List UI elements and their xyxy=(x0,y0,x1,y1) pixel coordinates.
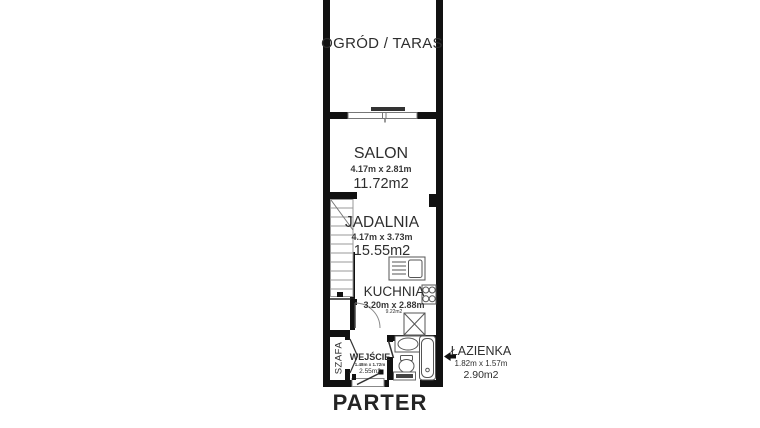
salon-label: SALON xyxy=(350,145,411,163)
salon-area: 11.72m2 xyxy=(350,176,411,193)
entrance-label: WEJŚCIE xyxy=(350,352,391,362)
bathroom-dimensions: 1.82m x 1.57m xyxy=(451,359,511,369)
room-label-dining: JADALNIA 4.17m x 3.73m 15.55m2 xyxy=(345,214,419,260)
plan-title: PARTER xyxy=(333,390,428,416)
kitchen-label: KUCHNIA xyxy=(363,284,424,300)
bathroom-window-icon xyxy=(394,372,416,380)
dining-label: JADALNIA xyxy=(345,214,419,232)
room-label-bathroom: ŁAZIENKA 1.82m x 1.57m 2.90m2 xyxy=(451,344,511,381)
balcony-step xyxy=(371,107,405,111)
room-label-terrace: OGRÓD / TARAS xyxy=(321,35,443,52)
dining-dimensions: 4.17m x 3.73m xyxy=(345,232,419,242)
room-label-kitchen: KUCHNIA 3.20m x 2.88m 9.22m2 xyxy=(363,284,424,316)
kitchen-area: 9.22m2 xyxy=(363,310,424,316)
bathroom-label: ŁAZIENKA xyxy=(451,344,511,359)
room-label-wardrobe: SZAFA xyxy=(334,342,345,375)
fridge-icon xyxy=(404,313,425,335)
entrance-dimensions: 1.48m x 1.72m xyxy=(350,362,391,367)
wardrobe-label: SZAFA xyxy=(334,342,345,375)
understair-closet xyxy=(330,299,357,305)
bathroom-area: 2.90m2 xyxy=(451,369,511,382)
washbasin-icon xyxy=(395,336,421,352)
floor-plan-canvas: OGRÓD / TARAS SALON 4.17m x 2.81m 11.72m… xyxy=(0,0,760,428)
bathtub-icon xyxy=(420,336,436,380)
terrace-label: OGRÓD / TARAS xyxy=(321,35,443,52)
toilet-icon xyxy=(399,356,414,373)
room-label-salon: SALON 4.17m x 2.81m 11.72m2 xyxy=(350,145,411,192)
kitchen-sink-icon xyxy=(389,257,425,280)
room-label-entrance: WEJŚCIE 1.48m x 1.72m 2.55m2 xyxy=(350,352,391,375)
terrace-window-icon xyxy=(348,113,417,123)
entrance-area: 2.55m2 xyxy=(350,368,391,375)
salon-dimensions: 4.17m x 2.81m xyxy=(350,164,411,174)
dining-area: 15.55m2 xyxy=(345,243,419,260)
